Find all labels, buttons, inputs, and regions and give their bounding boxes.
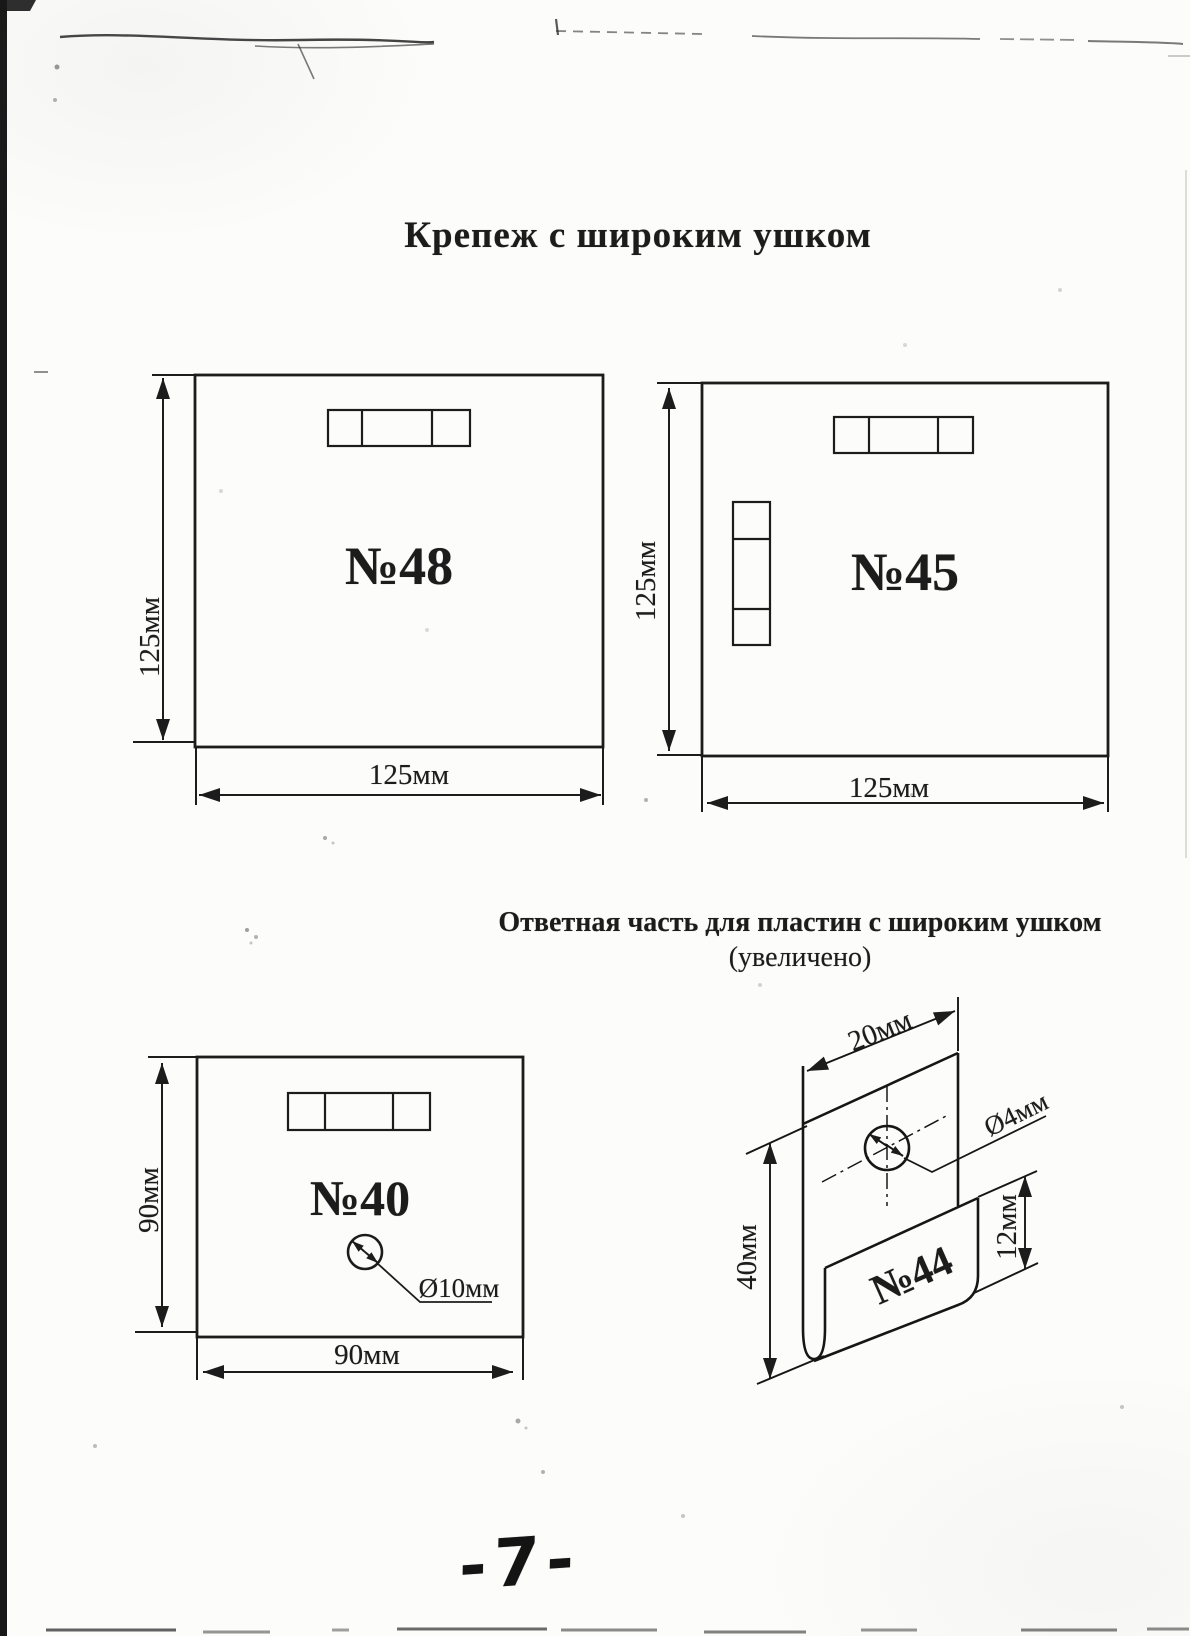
plate-40-height-dim-label: 90мм	[132, 1130, 166, 1270]
section-subtitle: Ответная часть для пластин с широким ушк…	[510, 903, 1090, 943]
plate-45-side-slot	[733, 502, 770, 645]
hook-44-outline	[803, 1053, 978, 1361]
plate-45-height-dimension	[657, 383, 702, 755]
plate-48-width-dim-label: 125мм	[339, 758, 479, 792]
subtitle-note: (увеличено)	[700, 941, 900, 975]
plate-40-width-dim-label: 90мм	[297, 1338, 437, 1372]
plate-40-slot	[288, 1093, 430, 1130]
hook-44-height-dim-label: 40мм	[730, 1187, 764, 1327]
plate-48-label: №48	[319, 537, 479, 595]
hook-44-lip-dim-label: 12мм	[990, 1157, 1024, 1297]
scan-edge-bottom-line	[46, 1629, 1189, 1632]
plate-48-slot	[328, 410, 470, 446]
handwritten-page-number: -7-	[430, 1517, 611, 1610]
plate-40-label: №40	[280, 1171, 440, 1225]
page-title: Крепеж с широким ушком	[358, 211, 918, 259]
plate-45-height-dim-label: 125мм	[629, 511, 663, 651]
plate-45-top-slot	[834, 417, 973, 453]
scanned-technical-drawing-page: Крепеж с широким ушком Ответная часть дл…	[0, 0, 1190, 1636]
scan-specks	[53, 65, 1124, 1519]
plate-40-hole-dia-label: Ø10мм	[389, 1273, 529, 1303]
plate-45-width-dim-label: 125мм	[819, 771, 959, 805]
plate-45-label: №45	[825, 543, 985, 601]
scan-edge-left-band	[0, 0, 7, 1636]
plate-48-height-dim-label: 125мм	[133, 567, 167, 707]
